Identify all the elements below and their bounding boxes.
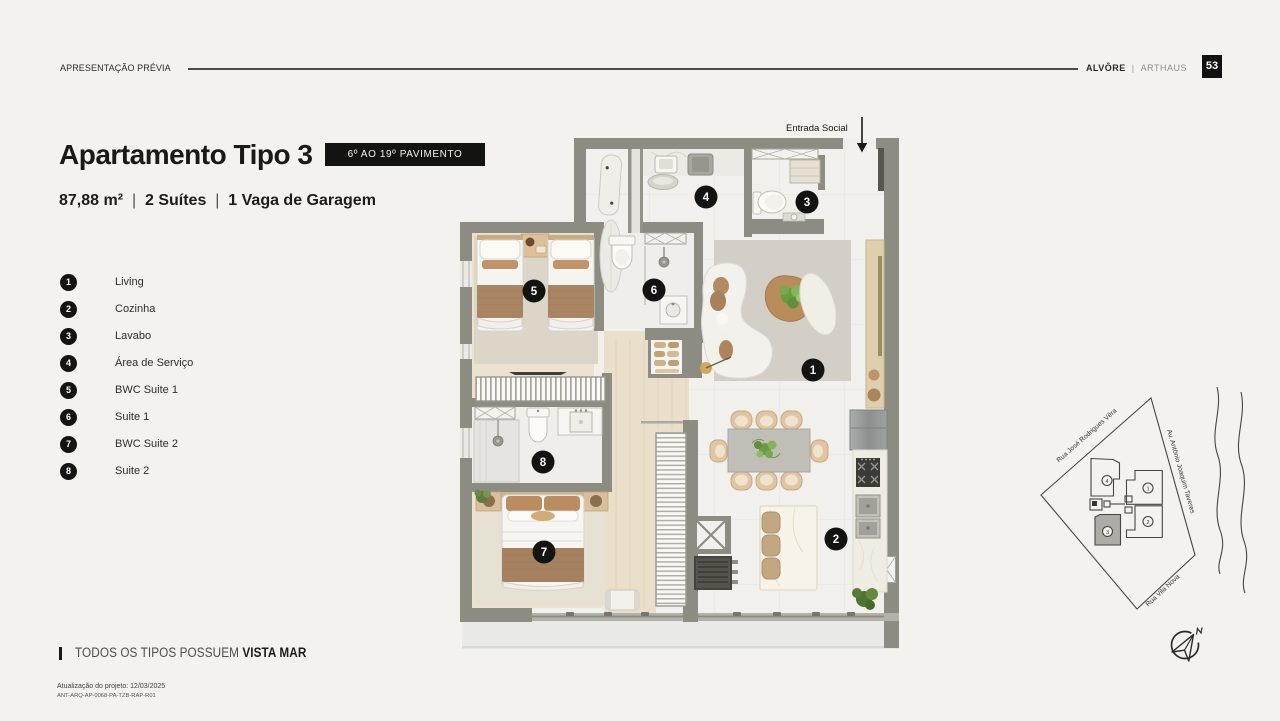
svg-text:1: 1	[810, 365, 817, 377]
svg-text:2: 2	[833, 534, 839, 546]
svg-text:5: 5	[531, 286, 538, 298]
svg-text:Entrada Social: Entrada Social	[786, 123, 848, 134]
svg-text:Rua Vila Nova: Rua Vila Nova	[1145, 573, 1182, 608]
svg-text:6: 6	[651, 285, 657, 297]
svg-text:3: 3	[804, 197, 810, 209]
svg-text:1: 1	[1146, 486, 1149, 492]
svg-text:2: 2	[1146, 520, 1149, 526]
svg-text:4: 4	[1105, 479, 1108, 485]
svg-text:7: 7	[541, 547, 547, 559]
svg-text:Rua José Rodrigues Vêra: Rua José Rodrigues Vêra	[1056, 407, 1119, 464]
svg-text:8: 8	[540, 457, 547, 469]
svg-text:3: 3	[1106, 530, 1109, 536]
svg-text:4: 4	[703, 192, 710, 204]
